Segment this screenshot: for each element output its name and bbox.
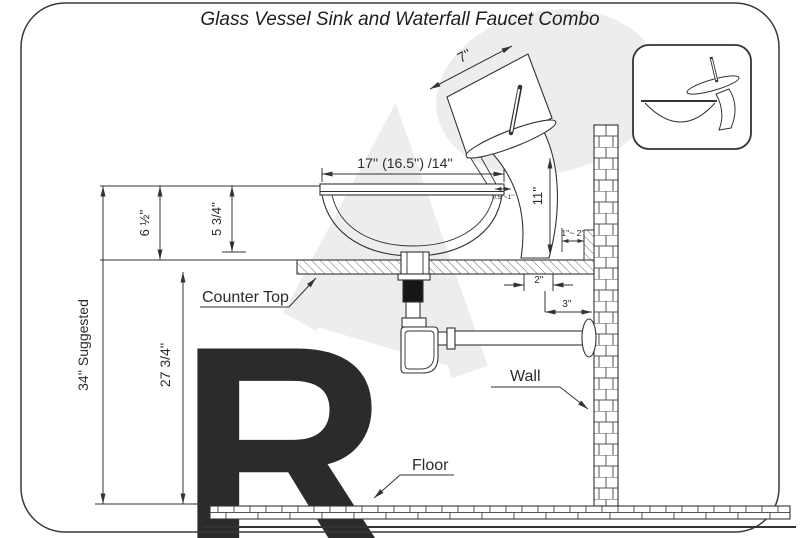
- dim-rim-offset-text: 0.5''~1'': [492, 194, 513, 201]
- trap-slip-nut: [402, 318, 426, 327]
- floor-bricks: [210, 506, 790, 519]
- counter-top-surface: [297, 260, 594, 274]
- dim-drain-offset: 2'': [504, 274, 573, 291]
- dim-under-counter-text: 27 3/4'': [157, 343, 173, 387]
- watermark-letter-r: R: [178, 286, 387, 538]
- dim-bowl-height: 5 3/4'': [209, 186, 232, 252]
- wall-flange: [582, 319, 596, 357]
- label-wall-text: Wall: [510, 368, 541, 385]
- waste-pipe: [455, 331, 585, 345]
- dim-bowl-height-text: 5 3/4'': [209, 202, 224, 236]
- dim-faucet-wall-gap-text: 1''~ 2'': [561, 228, 585, 238]
- dim-drain-wall-text: 3'': [562, 299, 571, 310]
- trap-body: [401, 327, 438, 373]
- drain-tailpiece: [406, 302, 420, 318]
- sink-rim: [320, 184, 504, 195]
- dim-counter-height: 34'' Suggested: [75, 186, 103, 504]
- dim-faucet-wall-gap: 1''~ 2'': [561, 228, 585, 252]
- label-wall: Wall: [491, 368, 588, 409]
- pipe-coupling: [447, 328, 455, 349]
- page-title: Glass Vessel Sink and Waterfall Faucet C…: [200, 9, 599, 30]
- dim-counter-height-text: 34'' Suggested: [75, 299, 91, 391]
- drain-threaded-section: [403, 280, 423, 302]
- dim-faucet-height-text: 11'': [530, 187, 545, 205]
- label-counter-top-text: Counter Top: [202, 289, 289, 306]
- label-floor-text: Floor: [412, 457, 449, 474]
- dim-sink-width-text: 17'' (16.5'') /14'': [357, 155, 452, 171]
- dim-drain-offset-text: 2'': [534, 275, 543, 286]
- dim-drain-wall: 3'': [545, 291, 592, 312]
- inset-thumbnail: [633, 45, 751, 149]
- backsplash-block: [584, 230, 594, 260]
- diagram-canvas: R Glass Vessel Sink and Waterfall Faucet…: [0, 0, 800, 538]
- drain-body: [401, 252, 429, 274]
- drain-flange: [398, 274, 430, 280]
- dim-sink-total-height-text: 6 ½'': [137, 210, 152, 237]
- wall-bricks: [594, 125, 618, 506]
- dim-sink-total-height: 6 ½'': [137, 186, 160, 260]
- trap-outlet: [438, 332, 447, 345]
